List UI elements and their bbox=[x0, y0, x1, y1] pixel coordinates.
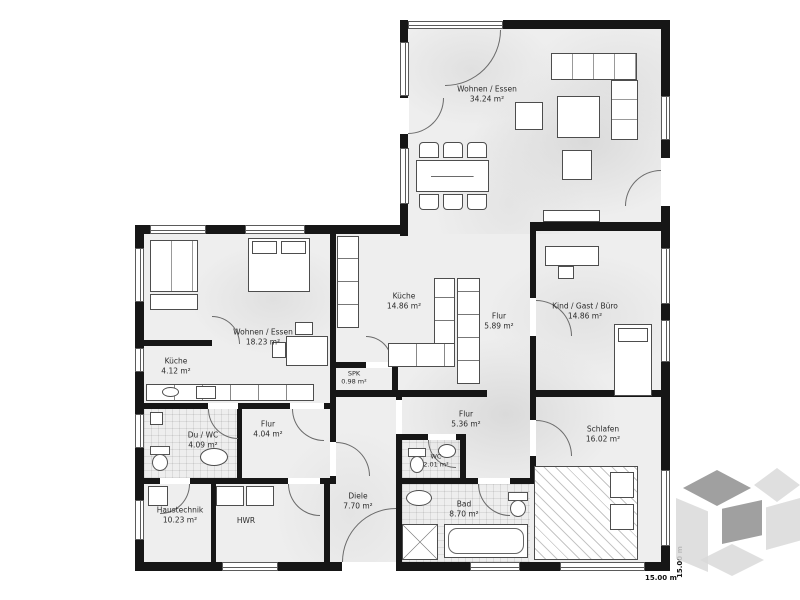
room-label-flur-nord: Flur 5.89 m² bbox=[484, 311, 513, 331]
room-area: 10.23 m² bbox=[157, 515, 204, 525]
window bbox=[560, 562, 645, 571]
chair bbox=[467, 194, 487, 210]
pillow bbox=[618, 328, 648, 342]
window bbox=[222, 562, 278, 571]
window bbox=[400, 42, 409, 96]
bathtub bbox=[444, 524, 528, 558]
toilet-bowl bbox=[410, 456, 425, 474]
pillow bbox=[281, 241, 306, 254]
brand-watermark-icon bbox=[700, 544, 764, 576]
room-area: 8.70 m² bbox=[449, 509, 478, 519]
chair bbox=[467, 142, 487, 158]
sofa bbox=[150, 240, 198, 292]
shower bbox=[402, 524, 438, 560]
room-label-schlafen: Schlafen 16.02 m² bbox=[586, 424, 620, 444]
window bbox=[245, 225, 305, 234]
sofa bbox=[611, 80, 638, 140]
room-area: 18.23 m² bbox=[233, 337, 293, 347]
door-opening bbox=[661, 158, 670, 206]
chair bbox=[295, 322, 313, 335]
wall-segment bbox=[392, 368, 398, 397]
wall-segment bbox=[324, 484, 330, 562]
armchair bbox=[515, 102, 543, 130]
room-label-kind-gast-buero: Kind / Gast / Büro 14.86 m² bbox=[552, 301, 618, 321]
window bbox=[408, 21, 503, 29]
brand-watermark-icon bbox=[722, 500, 762, 544]
room-area: 0.98 m² bbox=[341, 378, 366, 386]
window bbox=[400, 148, 409, 204]
room-name: Wohnen / Essen bbox=[233, 327, 293, 337]
window bbox=[135, 348, 144, 372]
pillow bbox=[252, 241, 277, 254]
sink bbox=[162, 387, 179, 397]
wall-segment bbox=[330, 390, 487, 397]
door-opening bbox=[396, 400, 402, 434]
toilet-bowl bbox=[152, 454, 168, 472]
room-label-du-wc: Du / WC 4.09 m² bbox=[188, 430, 218, 450]
sideboard bbox=[543, 210, 600, 222]
room-name: Küche bbox=[387, 291, 421, 301]
room-label-hwr: HWR bbox=[237, 516, 255, 526]
bathtub-inner bbox=[448, 528, 524, 554]
room-area: 5.36 m² bbox=[451, 419, 480, 429]
kitchen-counter bbox=[434, 278, 455, 344]
sink bbox=[200, 448, 228, 466]
room-name: Flur bbox=[253, 419, 282, 429]
room-area: 4.04 m² bbox=[253, 429, 282, 439]
room-label-kueche-elw: Küche 4.12 m² bbox=[161, 356, 190, 376]
chair bbox=[443, 194, 463, 210]
armchair bbox=[562, 150, 592, 180]
room-label-flur-sued: Flur 5.36 m² bbox=[451, 409, 480, 429]
chair bbox=[419, 194, 439, 210]
room-name: Flur bbox=[451, 409, 480, 419]
room-label-wohnen-essen-haupt: Wohnen / Essen 34.24 m² bbox=[457, 84, 517, 104]
wall-segment bbox=[460, 440, 466, 478]
room-area: 14.86 m² bbox=[552, 311, 618, 321]
room-label-spk: SPK 0.98 m² bbox=[341, 370, 366, 387]
stove bbox=[196, 386, 216, 399]
room-area: 4.12 m² bbox=[161, 366, 190, 376]
window bbox=[661, 96, 670, 140]
room-name: SPK bbox=[341, 370, 366, 378]
room-area: 34.24 m² bbox=[457, 94, 517, 104]
toilet bbox=[148, 446, 172, 472]
room-name: WC bbox=[423, 453, 448, 461]
room-label-diele: Diele 7.70 m² bbox=[343, 491, 372, 511]
toilet-bowl bbox=[510, 500, 526, 518]
sofa bbox=[551, 53, 637, 80]
room-name: Diele bbox=[343, 491, 372, 501]
window bbox=[135, 248, 144, 302]
tall-cabinet bbox=[337, 236, 359, 328]
pillow bbox=[610, 504, 634, 530]
desk bbox=[545, 246, 599, 266]
chair bbox=[558, 266, 574, 279]
wall-segment bbox=[503, 20, 670, 29]
room-area: 16.02 m² bbox=[586, 434, 620, 444]
room-name: Wohnen / Essen bbox=[457, 84, 517, 94]
room-area: 2.01 m² bbox=[423, 461, 448, 469]
room-area: 5.89 m² bbox=[484, 321, 513, 331]
dining-table bbox=[416, 160, 489, 192]
wall-segment bbox=[536, 222, 670, 231]
tv-board bbox=[150, 294, 198, 310]
wall-segment bbox=[144, 340, 212, 346]
room-name: Du / WC bbox=[188, 430, 218, 440]
room-area: 14.86 m² bbox=[387, 301, 421, 311]
entrance-door-opening bbox=[342, 562, 396, 571]
window bbox=[135, 500, 144, 540]
sink bbox=[406, 490, 432, 506]
room-area: 4.09 m² bbox=[188, 440, 218, 450]
room-name: Haustechnik bbox=[157, 505, 204, 515]
pillow bbox=[610, 472, 634, 498]
room-label-wohnen-essen-elw: Wohnen / Essen 18.23 m² bbox=[233, 327, 293, 347]
kitchen-counter bbox=[388, 343, 455, 367]
window bbox=[135, 414, 144, 448]
coffee-table bbox=[557, 96, 600, 138]
room-label-haustechnik: Haustechnik 10.23 m² bbox=[157, 505, 204, 525]
chair bbox=[419, 142, 439, 158]
toilet bbox=[506, 492, 530, 518]
room-label-wc: WC 2.01 m² bbox=[423, 453, 448, 470]
boiler bbox=[148, 486, 168, 506]
room-name: Bad bbox=[449, 499, 478, 509]
brand-watermark-icon bbox=[754, 468, 800, 502]
room-name: HWR bbox=[237, 516, 255, 526]
dimension-width: 15.00 m bbox=[645, 574, 677, 582]
room-name: Küche bbox=[161, 356, 190, 366]
room-area: 7.70 m² bbox=[343, 501, 372, 511]
room-label-bad: Bad 8.70 m² bbox=[449, 499, 478, 519]
window bbox=[661, 248, 670, 304]
window bbox=[661, 320, 670, 362]
dryer bbox=[246, 486, 274, 506]
room-name: Flur bbox=[484, 311, 513, 321]
brand-watermark-icon bbox=[683, 470, 751, 506]
cistern bbox=[150, 412, 163, 425]
floor-plan: Wohnen / Essen 34.24 m² Wohnen / Essen 1… bbox=[0, 0, 800, 600]
wardrobe bbox=[457, 278, 480, 384]
window bbox=[150, 225, 206, 234]
room-name: Kind / Gast / Büro bbox=[552, 301, 618, 311]
room-name: Schlafen bbox=[586, 424, 620, 434]
window bbox=[470, 562, 520, 571]
room-label-kueche: Küche 14.86 m² bbox=[387, 291, 421, 311]
window bbox=[661, 470, 670, 546]
room-label-flur-elw: Flur 4.04 m² bbox=[253, 419, 282, 439]
brand-watermark-icon bbox=[766, 498, 800, 550]
chair bbox=[443, 142, 463, 158]
washing-machine bbox=[216, 486, 244, 506]
